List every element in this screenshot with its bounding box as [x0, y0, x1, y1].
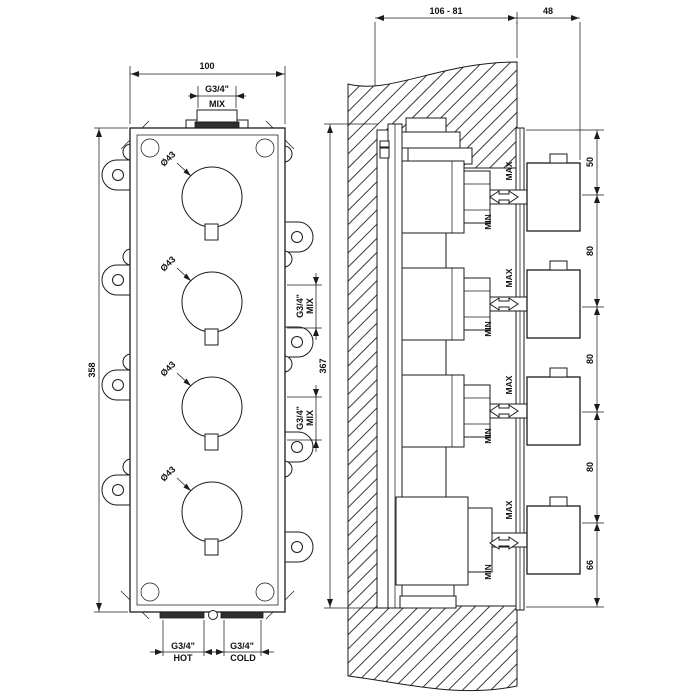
center-notch — [209, 611, 218, 620]
hot-port — [160, 612, 204, 618]
spacing-dim-label: 50 — [585, 157, 595, 167]
width-dim-label: 100 — [199, 61, 214, 71]
side-port-thread-label: G3/4" — [295, 294, 305, 318]
max-label: MAX — [504, 161, 514, 180]
spacing-dim-label: 80 — [585, 354, 595, 364]
top-port-mix-label: MIX — [209, 99, 225, 109]
ear-hole — [292, 542, 303, 553]
knob-tab — [205, 539, 218, 555]
fixing-bolt — [380, 141, 389, 147]
valve-drawing: Ø43 Ø43 Ø43 Ø43 100 — [0, 0, 700, 700]
front-height-label: 358 — [87, 362, 97, 377]
max-label: MAX — [504, 268, 514, 287]
handle-side — [527, 377, 580, 445]
side-port-mix-label: MIX — [305, 298, 315, 314]
dim-hot-port: G3/4" HOT — [150, 620, 217, 663]
handle-side — [527, 270, 580, 338]
handles — [527, 154, 580, 574]
section-view: MAX MIN MAX MIN MAX MIN MAX MIN — [318, 6, 604, 691]
ear-hole — [113, 170, 124, 181]
handle-notch — [550, 368, 567, 377]
cold-port — [221, 612, 263, 618]
front-view: Ø43 Ø43 Ø43 Ø43 100 — [87, 61, 322, 663]
min-label: MIN — [483, 564, 493, 580]
handle-notch — [550, 497, 567, 506]
min-label: MIN — [483, 214, 493, 230]
hot-label: HOT — [174, 653, 194, 663]
max-label: MAX — [504, 500, 514, 519]
side-port-thread-label: G3/4" — [295, 406, 305, 430]
top-mix-port — [186, 110, 248, 128]
ear-hole — [292, 232, 303, 243]
knob-tab — [205, 329, 218, 345]
ear-hole — [292, 337, 303, 348]
section-height-label: 367 — [318, 358, 328, 373]
handle-side — [527, 506, 580, 574]
ear-hole — [113, 275, 124, 286]
spacing-dim-label: 80 — [585, 462, 595, 472]
recess-depth-label: 106 - 81 — [429, 6, 462, 16]
spacing-dim-label: 66 — [585, 560, 595, 570]
bottom-ports — [160, 611, 263, 620]
cold-thread-label: G3/4" — [230, 641, 254, 651]
ear-hole — [113, 380, 124, 391]
diverter-head — [468, 508, 492, 572]
top-port-thread-label: G3/4" — [205, 84, 229, 94]
min-label: MIN — [483, 321, 493, 337]
handle-projection-label: 48 — [543, 6, 553, 16]
technical-drawing-sheet: Ø43 Ø43 Ø43 Ø43 100 — [0, 0, 700, 700]
dim-cold-port: G3/4" COLD — [211, 620, 274, 663]
spacing-dim-label: 80 — [585, 246, 595, 256]
ear-hole — [113, 485, 124, 496]
handle-notch — [550, 154, 567, 163]
side-port-mix-label: MIX — [305, 410, 315, 426]
dim-top-port: G3/4" MIX — [188, 84, 246, 109]
max-label: MAX — [504, 375, 514, 394]
handle-notch — [550, 261, 567, 270]
mounting-bracket — [377, 130, 388, 608]
hot-thread-label: G3/4" — [171, 641, 195, 651]
knob-tab — [205, 224, 218, 240]
ear-hole — [292, 442, 303, 453]
min-label: MIN — [483, 428, 493, 444]
cold-label: COLD — [230, 653, 256, 663]
handle-side — [527, 163, 580, 231]
knob-tab — [205, 434, 218, 450]
